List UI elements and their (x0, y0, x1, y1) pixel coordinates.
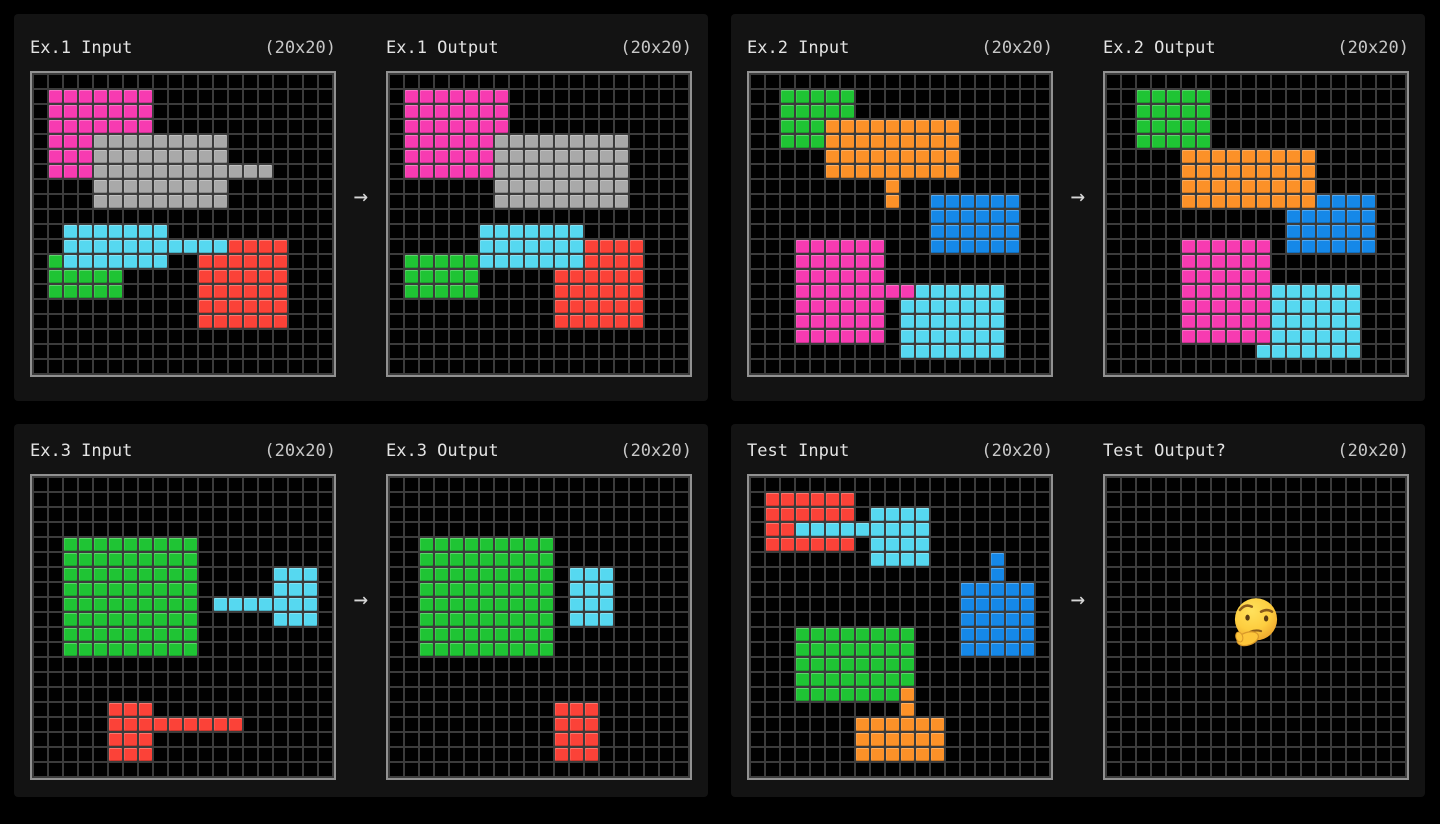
grid-cell (184, 748, 197, 761)
grid-cell (139, 285, 152, 298)
grid-cell (480, 538, 493, 551)
grid-cell (630, 90, 643, 103)
grid-cell (199, 270, 212, 283)
grid-cell (1362, 345, 1375, 358)
grid-cell (1212, 523, 1225, 536)
grid-cell (1377, 688, 1390, 701)
grid-cell (555, 553, 568, 566)
grid-cell (420, 105, 433, 118)
grid-cell (199, 763, 212, 776)
grid-cell (1021, 330, 1034, 343)
grid-cell (856, 553, 869, 566)
grid-cell (274, 583, 287, 596)
grid-cell (600, 255, 613, 268)
grid-cell (274, 225, 287, 238)
grid-cell (510, 703, 523, 716)
grid-cell (49, 598, 62, 611)
grid-cell (856, 703, 869, 716)
grid-cell (1302, 643, 1315, 656)
grid-cell (405, 538, 418, 551)
grid-cell (109, 673, 122, 686)
grid-cell (1317, 150, 1330, 163)
grid-cell (289, 508, 302, 521)
grid-cell (450, 195, 463, 208)
grid-cell (585, 165, 598, 178)
grid-cell (420, 225, 433, 238)
grid-cell (435, 300, 448, 313)
grid-cell (1137, 195, 1150, 208)
grid-cell (480, 553, 493, 566)
grid-cell (841, 270, 854, 283)
grid-cell (199, 300, 212, 313)
grid-cell (154, 553, 167, 566)
grid-cell (1287, 195, 1300, 208)
grid-cell (826, 135, 839, 148)
grid-cell (751, 703, 764, 716)
grid-cell (916, 315, 929, 328)
grid-cell (781, 583, 794, 596)
grid-cell (931, 673, 944, 686)
grid-cell (525, 285, 538, 298)
grid-cell (796, 568, 809, 581)
grid-cell (390, 658, 403, 671)
grid-cell (946, 688, 959, 701)
grid-cell (390, 135, 403, 148)
grid-cell (600, 628, 613, 641)
grid-cell (766, 150, 779, 163)
grid-cell (841, 360, 854, 373)
grid-cell (154, 478, 167, 491)
grid-cell (244, 75, 257, 88)
grid-cell (991, 210, 1004, 223)
grid-cell (630, 508, 643, 521)
grid-cell (660, 150, 673, 163)
grid-cell (1362, 180, 1375, 193)
grid-cell (64, 733, 77, 746)
grid-header: Ex.2 Output (20x20) (1103, 38, 1409, 58)
grid-cell (946, 345, 959, 358)
grid-cell (259, 150, 272, 163)
grid-cell (976, 225, 989, 238)
grid-cell (660, 285, 673, 298)
grid-cell (1036, 210, 1049, 223)
grid-cell (1332, 225, 1345, 238)
grid-cell (630, 240, 643, 253)
grid-cell (660, 673, 673, 686)
grid-cell (1152, 285, 1165, 298)
grid-cell (244, 508, 257, 521)
grid-cell (1347, 270, 1360, 283)
grid-cell (34, 553, 47, 566)
grid-cell (465, 135, 478, 148)
grid-cell (139, 210, 152, 223)
grid-cell (154, 120, 167, 133)
grid-cell (259, 538, 272, 551)
grid-cell (751, 613, 764, 626)
grid-cell (615, 300, 628, 313)
grid-cell (901, 748, 914, 761)
grid-cell (229, 583, 242, 596)
grid-cell (961, 493, 974, 506)
grid-cell (1287, 628, 1300, 641)
grid-cell (465, 360, 478, 373)
grid-cell (244, 493, 257, 506)
grid-cell (1242, 315, 1255, 328)
grid-cell (600, 688, 613, 701)
grid-cell (495, 703, 508, 716)
grid-cell (811, 300, 824, 313)
grid-cell (480, 673, 493, 686)
grid-cell (1227, 538, 1240, 551)
grid-cell (510, 583, 523, 596)
grid-cell (244, 330, 257, 343)
grid-cell (660, 195, 673, 208)
grid-cell (1021, 225, 1034, 238)
grid-cell (781, 90, 794, 103)
grid-cell (480, 748, 493, 761)
grid-cell (555, 583, 568, 596)
grid-cell (94, 90, 107, 103)
grid-cell (64, 195, 77, 208)
grid-cell (931, 523, 944, 536)
grid-cell (169, 270, 182, 283)
grid-cell (630, 658, 643, 671)
grid-cell (1021, 763, 1034, 776)
grid-cell (34, 583, 47, 596)
grid-cell (540, 300, 553, 313)
grid-cell (64, 673, 77, 686)
grid-cell (405, 75, 418, 88)
grid-cell (856, 673, 869, 686)
grid-cell (199, 673, 212, 686)
grid-cell (525, 120, 538, 133)
grid-cell (1107, 538, 1120, 551)
grid-cell (570, 270, 583, 283)
grid-cell (64, 165, 77, 178)
grid-cell (1021, 135, 1034, 148)
grid-cell (510, 523, 523, 536)
grid-cell (510, 240, 523, 253)
grid-cell (811, 135, 824, 148)
grid-cell (109, 493, 122, 506)
grid-cell (931, 538, 944, 551)
grid-cell (1287, 165, 1300, 178)
grid-cell (540, 225, 553, 238)
grid-cell (630, 75, 643, 88)
grid-cell (871, 478, 884, 491)
grid-cell (495, 493, 508, 506)
grid-cell (781, 180, 794, 193)
grid-cell (390, 90, 403, 103)
grid-cell (1107, 255, 1120, 268)
grid-cell (856, 583, 869, 596)
grid-cell (214, 330, 227, 343)
grid-cell (1167, 523, 1180, 536)
grid-cell (510, 180, 523, 193)
grid-cell (766, 703, 779, 716)
grid-cell (49, 733, 62, 746)
grid-cell (1152, 240, 1165, 253)
grid-cell (465, 345, 478, 358)
grid-cell (1182, 643, 1195, 656)
grid-cell (555, 568, 568, 581)
grid-cell (1137, 270, 1150, 283)
grid-cell (871, 763, 884, 776)
grid-cell (540, 553, 553, 566)
grid-cell (1302, 658, 1315, 671)
grid-cell (751, 673, 764, 686)
grid-cell (214, 300, 227, 313)
grid-cell (931, 718, 944, 731)
grid-cell (450, 748, 463, 761)
grid-cell (1392, 165, 1405, 178)
grid-cell (495, 643, 508, 656)
grid-cell (1317, 345, 1330, 358)
grid-cell (1107, 360, 1120, 373)
grid-cell (64, 120, 77, 133)
grid-cell (109, 568, 122, 581)
grid-cell (1021, 180, 1034, 193)
grid-cell (169, 240, 182, 253)
grid-cell (856, 643, 869, 656)
grid-cell (510, 733, 523, 746)
grid-cell (450, 613, 463, 626)
grid-cell (555, 150, 568, 163)
grid-cell (946, 763, 959, 776)
grid-cell (525, 135, 538, 148)
grid-cell (139, 225, 152, 238)
grid-cell (796, 75, 809, 88)
grid-cell (1212, 255, 1225, 268)
grid-cell (1362, 240, 1375, 253)
grid-cell (274, 150, 287, 163)
grid-cell (1212, 718, 1225, 731)
grid-cell (766, 748, 779, 761)
grid-cell (94, 568, 107, 581)
grid-cell (976, 583, 989, 596)
grid-cell (675, 285, 688, 298)
grid-cell (495, 180, 508, 193)
grid-cell (289, 135, 302, 148)
grid-cell (811, 583, 824, 596)
grid-cell (976, 568, 989, 581)
grid-cell (811, 748, 824, 761)
grid-cell (600, 345, 613, 358)
grid-cell (169, 360, 182, 373)
grid-cell (916, 733, 929, 746)
grid-cell (229, 300, 242, 313)
grid-cell (1272, 255, 1285, 268)
grid-cell (1197, 90, 1210, 103)
grid-cell (766, 120, 779, 133)
grid-cell (420, 360, 433, 373)
grid-cell (435, 285, 448, 298)
grid-cell (1197, 360, 1210, 373)
grid-cell (465, 165, 478, 178)
grid-cell (169, 90, 182, 103)
grid-cell (961, 643, 974, 656)
grid-cell (585, 150, 598, 163)
grid-cell (916, 210, 929, 223)
grid-cell (1257, 300, 1270, 313)
grid-cell (826, 718, 839, 731)
grid-cell (660, 270, 673, 283)
grid-cell (139, 553, 152, 566)
grid-cell (420, 718, 433, 731)
grid-cell (304, 493, 317, 506)
grid-cell (34, 673, 47, 686)
grid-cell (796, 240, 809, 253)
grid-cell (675, 733, 688, 746)
grid-cell (49, 658, 62, 671)
grid-cell (1182, 538, 1195, 551)
grid-cell (229, 538, 242, 551)
grid-cell (49, 225, 62, 238)
grid-cell (1107, 300, 1120, 313)
grid-cell (751, 508, 764, 521)
grid-cell (510, 90, 523, 103)
grid-cell (901, 75, 914, 88)
grid-cell (525, 300, 538, 313)
grid-cell (1182, 270, 1195, 283)
grid-cell (109, 598, 122, 611)
grid-cell (274, 165, 287, 178)
grid-cell (826, 613, 839, 626)
grid-cell (856, 523, 869, 536)
grid-cell (555, 225, 568, 238)
grid-cell (450, 673, 463, 686)
grid-cell (420, 658, 433, 671)
grid-cell (811, 285, 824, 298)
grid-cell (1167, 598, 1180, 611)
grid-cell (916, 598, 929, 611)
grid-cell (480, 150, 493, 163)
grid-cell (1036, 748, 1049, 761)
grid-cell (495, 150, 508, 163)
grid-cell (1287, 538, 1300, 551)
grid-cell (304, 210, 317, 223)
grid-cell (480, 285, 493, 298)
grid-cell (79, 300, 92, 313)
grid-cell (49, 628, 62, 641)
grid-cell (1377, 75, 1390, 88)
grid-cell (390, 240, 403, 253)
grid-cell (244, 478, 257, 491)
grid-cell (931, 643, 944, 656)
grid-cell (1362, 478, 1375, 491)
grid-cell (901, 285, 914, 298)
grid-cell (1377, 598, 1390, 611)
grid-cell (94, 643, 107, 656)
grid-cell (540, 568, 553, 581)
grid-cell (1377, 583, 1390, 596)
grid-cell (540, 613, 553, 626)
grid-wrap (30, 71, 336, 377)
grid-cell (555, 748, 568, 761)
grid-cell (1392, 105, 1405, 118)
grid-cell (1317, 703, 1330, 716)
grid-cell (1287, 150, 1300, 163)
grid-cell (184, 478, 197, 491)
grid-cell (570, 330, 583, 343)
grid-cell (259, 568, 272, 581)
grid-cell (675, 270, 688, 283)
grid-cell (169, 105, 182, 118)
grid-cell (1227, 285, 1240, 298)
grid-cell (946, 493, 959, 506)
grid-cell (435, 360, 448, 373)
grid-cell (826, 553, 839, 566)
grid-cell (169, 613, 182, 626)
grid-cell (139, 315, 152, 328)
grid-cell (796, 165, 809, 178)
grid-cell (826, 75, 839, 88)
grid-cell (826, 508, 839, 521)
grid-cell (525, 598, 538, 611)
grid-cell (510, 255, 523, 268)
grid-cell (946, 613, 959, 626)
grid-cell (1122, 240, 1135, 253)
grid-cell (1137, 345, 1150, 358)
grid-cell (1182, 658, 1195, 671)
grid-cell (540, 75, 553, 88)
grid-cell (660, 210, 673, 223)
grid-cell (450, 478, 463, 491)
grid-cell (1242, 673, 1255, 686)
grid-cell (199, 195, 212, 208)
grid-cell (1377, 733, 1390, 746)
grid-cell (931, 478, 944, 491)
grid-cell (540, 523, 553, 536)
grid-cell (931, 315, 944, 328)
grid-cell (214, 285, 227, 298)
grid-cell (1107, 330, 1120, 343)
grid-header: Test Output? (20x20) (1103, 441, 1409, 461)
grid-cell (826, 225, 839, 238)
grid-cell (781, 643, 794, 656)
grid-cell (781, 210, 794, 223)
grid-cell (570, 523, 583, 536)
grid-cell (405, 285, 418, 298)
grid-cell (946, 628, 959, 641)
grid-cell (1212, 553, 1225, 566)
grid-cell (169, 718, 182, 731)
grid-cell (540, 285, 553, 298)
grid-cell (645, 90, 658, 103)
grid-cell (916, 748, 929, 761)
grid-cell (169, 538, 182, 551)
grid-cell (319, 763, 332, 776)
grid-cell (766, 195, 779, 208)
grid-cell (1006, 508, 1019, 521)
grid-cell (109, 90, 122, 103)
grid-ex1-output: Ex.1 Output (20x20) (386, 38, 692, 377)
grid-cell (886, 240, 899, 253)
grid-cell (94, 360, 107, 373)
grid-cell (1212, 330, 1225, 343)
grid-cell (1006, 748, 1019, 761)
grid-cell (319, 553, 332, 566)
grid-cell (495, 135, 508, 148)
grid-cell (976, 195, 989, 208)
grid-cell (946, 180, 959, 193)
grid-cell (931, 255, 944, 268)
grid-cell (139, 508, 152, 521)
grid-cell (510, 613, 523, 626)
grid-cell (886, 718, 899, 731)
grid-cell (916, 673, 929, 686)
grid-cell (1362, 703, 1375, 716)
